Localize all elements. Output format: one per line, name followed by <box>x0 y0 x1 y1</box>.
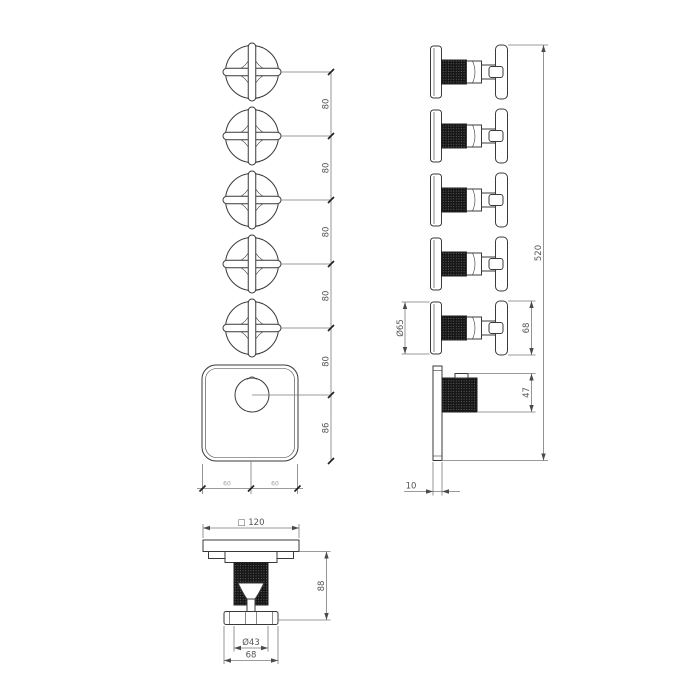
dim-flange-diameter: Ø65 <box>395 319 406 337</box>
front-chain-dimension: 80 80 80 80 80 86 <box>322 69 335 464</box>
knurled-volume-knob <box>442 378 477 412</box>
dim-knob-diameter: Ø43 <box>242 637 260 648</box>
dim-spacing-6: 86 <box>322 423 332 434</box>
side-plate-volume-knob <box>433 366 477 461</box>
side-handle-1 <box>431 45 508 99</box>
side-handle-3 <box>431 173 508 227</box>
cross-handle-front-1 <box>223 43 281 101</box>
cross-handle-front-2 <box>223 107 281 165</box>
side-handle-5 <box>431 301 508 355</box>
knurled-stem <box>442 316 467 340</box>
bottom-projection-dimension: 88 <box>278 552 331 621</box>
dim-spacing-4: 80 <box>322 291 332 302</box>
technical-drawing-page: 80 80 80 80 80 86 60 60 <box>0 0 700 700</box>
bottom-plate-width-dimension: □ 120 <box>203 518 299 538</box>
cross-handle-front-3 <box>223 171 281 229</box>
dim-projection: 88 <box>317 581 327 592</box>
front-plate-bottom-dimension: 60 60 <box>197 461 303 494</box>
dim-half-width-left: 60 <box>223 481 231 488</box>
front-view: 80 80 80 80 80 86 60 60 <box>197 43 334 494</box>
mixer-technical-drawing: 80 80 80 80 80 86 60 60 <box>0 0 700 700</box>
side-handle-4 <box>431 237 508 291</box>
dim-spacing-3: 80 <box>322 227 332 238</box>
bottom-plate <box>203 540 299 563</box>
dim-plate-thickness: 10 <box>406 482 417 492</box>
dim-plate-width: □ 120 <box>238 518 265 528</box>
knurled-stem <box>442 60 467 84</box>
front-plate <box>202 365 298 461</box>
bottom-handle <box>224 563 278 625</box>
side-view: 520 Ø65 68 47 <box>395 45 548 496</box>
knurled-stem <box>442 124 467 148</box>
bottom-knob-diameter-dimension: Ø43 <box>234 626 268 652</box>
dim-half-width-right: 60 <box>271 481 279 488</box>
cross-handle-front-4 <box>223 235 281 293</box>
side-handle-2 <box>431 109 508 163</box>
knurled-stem <box>442 252 467 276</box>
side-plate-thickness-dimension: 10 <box>404 462 460 496</box>
dim-handle-height: 68 <box>522 323 532 334</box>
dim-knob-projection: 47 <box>522 387 532 398</box>
side-flange-diameter-dimension: Ø65 <box>395 302 430 354</box>
cross-handle-front-5 <box>223 299 281 357</box>
dim-spacing-2: 80 <box>322 163 332 174</box>
knurled-stem <box>442 188 467 212</box>
dim-handle-width: 68 <box>246 651 257 661</box>
dim-spacing-5: 80 <box>322 356 332 367</box>
dim-spacing-1: 80 <box>322 99 332 110</box>
side-handle-height-dimension: 68 <box>508 301 536 355</box>
side-knob-projection-dimension: 47 <box>468 374 536 413</box>
bottom-view: □ 120 88 Ø43 68 <box>203 518 331 664</box>
dim-overall-height: 520 <box>534 245 544 261</box>
